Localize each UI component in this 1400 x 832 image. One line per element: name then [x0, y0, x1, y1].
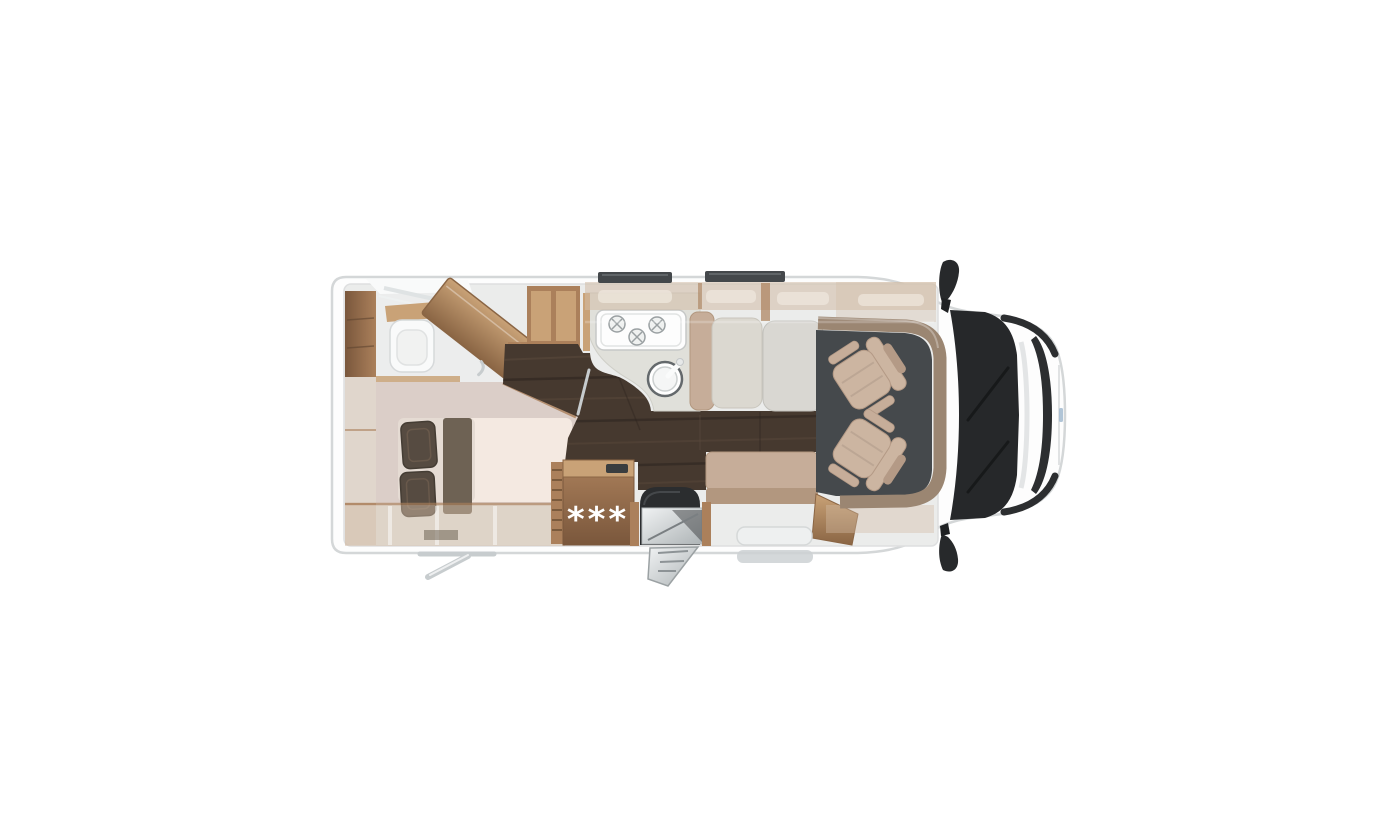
lower-cabinet-band: [826, 505, 934, 533]
cabinet-divider: [761, 283, 770, 321]
toilet: [390, 320, 434, 372]
floorplan-stage: ***: [0, 0, 1400, 832]
stove-burner: [609, 316, 625, 332]
door-exterior-mark: [737, 550, 813, 563]
side-bench-cushion: [706, 452, 818, 490]
cabinet-door: [598, 290, 672, 303]
forward-bench-back: [690, 312, 714, 410]
forward-bench-cushion: [712, 318, 762, 408]
cabinet-door: [858, 294, 924, 306]
underbed-storage: [345, 504, 565, 546]
heater-vent: [606, 464, 628, 473]
stove-burner: [629, 329, 645, 345]
heater-slats: [551, 462, 563, 544]
skylight-rear: [598, 272, 672, 283]
stove-burner: [649, 317, 665, 333]
bed-runner: [443, 418, 472, 514]
toilet-seat: [397, 330, 427, 365]
side-mirror-top-icon: [939, 260, 959, 313]
dinette-table: [763, 321, 823, 411]
exterior-rear-step: [420, 554, 494, 577]
door-outline: [737, 527, 812, 545]
side-mirror-bottom-icon: [939, 523, 958, 572]
entry-area: [630, 487, 711, 586]
faucet-base-icon: [677, 359, 684, 366]
skylight-mid: [705, 271, 785, 282]
heater-marker-label: ***: [567, 500, 629, 540]
bed-pillow: [400, 421, 437, 469]
motorhome-floorplan: ***: [0, 0, 1400, 832]
side-bench-front: [706, 488, 818, 504]
storage-vent: [424, 530, 458, 540]
front-emblem: [1059, 408, 1063, 422]
rear-wardrobe-column: [345, 291, 376, 377]
heater-cabinet: ***: [551, 460, 634, 545]
stove: [596, 310, 686, 350]
step-frame: [702, 502, 711, 546]
step-frame: [630, 502, 639, 546]
cabinet-door: [706, 290, 756, 303]
windshield: [950, 310, 1019, 520]
cabinet-door: [777, 292, 829, 305]
